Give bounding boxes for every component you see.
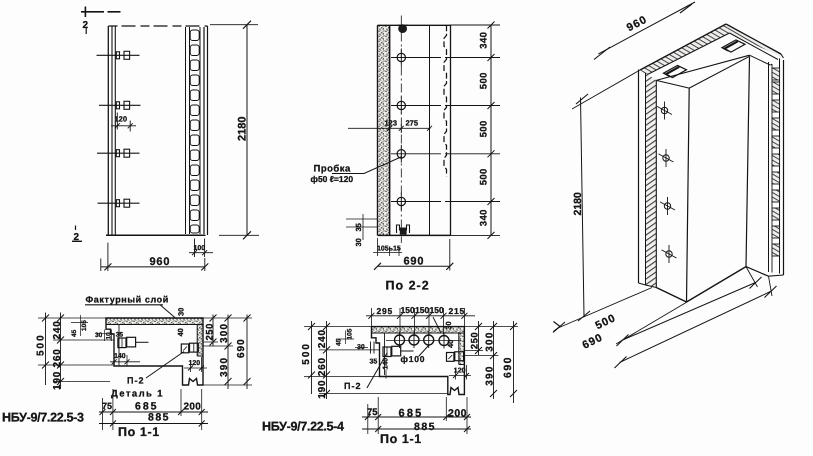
svg-text:П-2: П-2 <box>127 376 144 386</box>
svg-text:Фактурный слой: Фактурный слой <box>86 295 169 305</box>
svg-text:40: 40 <box>176 328 185 336</box>
svg-text:500: 500 <box>478 72 489 89</box>
svg-text:140: 140 <box>114 353 126 360</box>
svg-text:250: 250 <box>470 332 481 349</box>
svg-text:123: 123 <box>385 119 398 128</box>
svg-text:690: 690 <box>236 338 247 358</box>
svg-text:300: 300 <box>485 331 496 351</box>
svg-text:690: 690 <box>502 356 514 378</box>
svg-text:П-2: П-2 <box>344 381 361 391</box>
svg-text:500: 500 <box>478 120 489 137</box>
svg-text:200: 200 <box>184 402 202 413</box>
svg-text:390: 390 <box>485 365 496 385</box>
svg-text:250: 250 <box>204 323 215 340</box>
svg-text:685: 685 <box>399 408 424 420</box>
svg-text:690: 690 <box>404 255 425 267</box>
svg-text:35: 35 <box>116 332 124 339</box>
svg-text:45: 45 <box>71 329 78 337</box>
svg-text:150: 150 <box>415 305 429 315</box>
svg-text:35: 35 <box>354 223 363 231</box>
svg-text:НБУ-9/7.22.5-4: НБУ-9/7.22.5-4 <box>262 420 344 434</box>
svg-text:75: 75 <box>102 401 112 411</box>
svg-text:240: 240 <box>317 329 328 348</box>
svg-text:340: 340 <box>478 32 489 49</box>
svg-text:340: 340 <box>478 209 489 226</box>
svg-text:275: 275 <box>406 119 419 128</box>
svg-text:30: 30 <box>444 321 453 329</box>
svg-text:105: 105 <box>347 328 354 339</box>
svg-text:150: 150 <box>430 305 444 315</box>
svg-text:190: 190 <box>317 380 328 399</box>
svg-text:885: 885 <box>148 412 170 424</box>
svg-text:105ь15: 105ь15 <box>377 246 401 253</box>
svg-text:960: 960 <box>150 256 171 268</box>
svg-text:260: 260 <box>317 357 328 376</box>
svg-text:По 1-1: По 1-1 <box>118 425 160 439</box>
svg-text:295: 295 <box>377 306 394 316</box>
svg-text:300: 300 <box>219 323 230 343</box>
svg-text:190: 190 <box>52 371 63 390</box>
svg-text:Деталь 1: Деталь 1 <box>111 389 164 400</box>
svg-text:По 1-1: По 1-1 <box>380 432 422 446</box>
svg-text:По 2-2: По 2-2 <box>386 279 430 293</box>
svg-text:ф50 ℓ=120: ф50 ℓ=120 <box>311 174 354 184</box>
svg-text:100: 100 <box>194 245 206 252</box>
svg-text:150: 150 <box>401 305 415 315</box>
svg-text:240: 240 <box>52 320 63 339</box>
svg-text:НБУ-9/7.22.5-3: НБУ-9/7.22.5-3 <box>2 411 84 425</box>
svg-text:2180: 2180 <box>572 192 584 216</box>
svg-text:40: 40 <box>446 340 455 348</box>
svg-text:35: 35 <box>370 359 378 366</box>
svg-text:45: 45 <box>336 338 343 346</box>
svg-text:500: 500 <box>36 333 47 356</box>
svg-text:30: 30 <box>354 238 363 246</box>
svg-text:75: 75 <box>367 407 378 418</box>
svg-text:2180: 2180 <box>237 117 249 141</box>
svg-text:200: 200 <box>448 408 467 420</box>
svg-text:260: 260 <box>52 348 63 367</box>
svg-text:2: 2 <box>83 20 89 31</box>
svg-text:390: 390 <box>219 357 230 377</box>
svg-text:120: 120 <box>115 115 128 124</box>
svg-text:ф100: ф100 <box>401 354 426 364</box>
svg-text:30: 30 <box>177 308 186 316</box>
svg-text:500: 500 <box>478 168 489 185</box>
svg-text:215: 215 <box>449 306 466 316</box>
svg-text:Пробка: Пробка <box>314 164 352 175</box>
svg-text:105: 105 <box>81 320 88 331</box>
svg-text:500: 500 <box>301 342 312 365</box>
